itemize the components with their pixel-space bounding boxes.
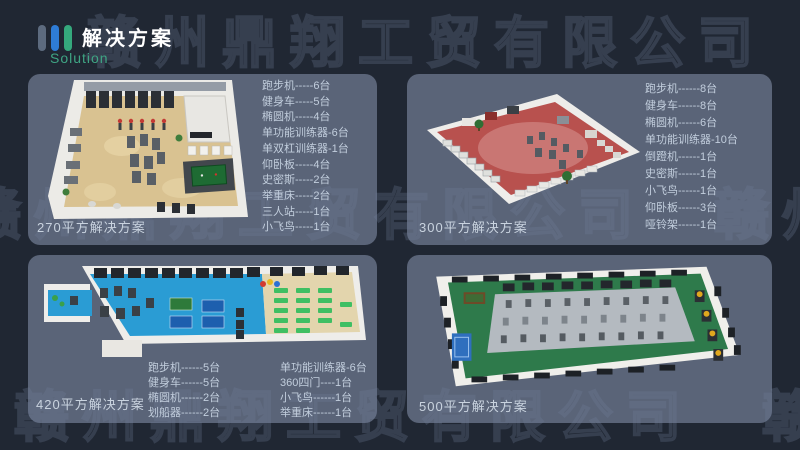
panel-caption-270: 270平方解决方案 bbox=[37, 217, 146, 236]
equipment-line: 史密斯-----2台 bbox=[262, 173, 349, 189]
window-strip bbox=[84, 82, 226, 91]
tv-screen bbox=[190, 132, 212, 138]
bar-blue-icon bbox=[51, 25, 59, 51]
dumbbell-rack bbox=[236, 308, 244, 339]
equipment-line: 健身车-----5台 bbox=[262, 95, 349, 111]
badminton-court bbox=[452, 333, 472, 360]
billiard-table bbox=[183, 158, 235, 193]
floorplan-420-image bbox=[30, 258, 375, 358]
page-title: 解决方案 bbox=[82, 22, 174, 51]
solution-panel-270: 跑步机-----6台健身车-----5台椭圆机-----4台单功能训练器-6台单… bbox=[28, 74, 377, 245]
green-board-table bbox=[170, 298, 192, 310]
equipment-line: 单双杠训练器-1台 bbox=[262, 142, 349, 158]
entry-block bbox=[102, 340, 142, 357]
solution-panel-420: 跑步机------5台健身车------5台椭圆机------2台划船器----… bbox=[28, 255, 377, 423]
equipment-line: 划船器------2台 bbox=[148, 406, 220, 421]
equipment-line: 跑步机-----6台 bbox=[262, 79, 349, 95]
solution-panel-500: 500平方解决方案 bbox=[407, 255, 772, 423]
slide: 赣州鼎翔工贸有限公司 赣州鼎翔工贸有限公司 赣州鼎翔工贸有限公司 赣州鼎翔工贸有… bbox=[0, 0, 800, 450]
solution-panel-300: 跑步机------8台健身车------8台椭圆机------6台单功能训练器-… bbox=[407, 74, 772, 245]
panel-caption-420: 420平方解决方案 bbox=[36, 394, 145, 413]
strength-machines bbox=[501, 296, 668, 343]
equipment-line: 跑步机------5台 bbox=[148, 361, 220, 376]
equipment-line: 倒蹬机------1台 bbox=[645, 149, 738, 166]
equipment-line: 跑步机------8台 bbox=[645, 81, 738, 98]
equipment-line: 举重床------1台 bbox=[280, 406, 367, 421]
equipment-line: 健身车------5台 bbox=[148, 376, 220, 391]
equipment-line: 单功能训练器-6台 bbox=[280, 361, 367, 376]
equipment-line: 单功能训练器-10台 bbox=[645, 132, 738, 149]
equipment-list-270: 跑步机-----6台健身车-----5台椭圆机-----4台单功能训练器-6台单… bbox=[262, 79, 349, 236]
floorplan-270-image bbox=[32, 76, 262, 226]
table-tennis-table bbox=[464, 292, 486, 304]
equipment-list-420-col2: 单功能训练器-6台360四门----1台小飞鸟------1台举重床------… bbox=[280, 361, 367, 421]
equipment-line: 椭圆机------6台 bbox=[645, 115, 738, 132]
equipment-line: 举重床-----2台 bbox=[262, 189, 349, 205]
equipment-line: 椭圆机-----4台 bbox=[262, 110, 349, 126]
equipment-list-300: 跑步机------8台健身车------8台椭圆机------6台单功能训练器-… bbox=[645, 81, 738, 234]
floorplan-300-image bbox=[407, 78, 645, 218]
equipment-list-420-col1: 跑步机------5台健身车------5台椭圆机------2台划船器----… bbox=[148, 361, 220, 421]
equipment-line: 小飞鸟------1台 bbox=[645, 183, 738, 200]
bar-gray-icon bbox=[38, 25, 46, 51]
equipment-line: 史密斯------1台 bbox=[645, 166, 738, 183]
equipment-line: 仰卧板-----4台 bbox=[262, 158, 349, 174]
company-watermark: 赣州鼎翔工贸有限公司 赣州鼎翔工贸有限公司 bbox=[86, 0, 800, 78]
equipment-line: 仰卧板------3台 bbox=[645, 200, 738, 217]
equipment-line: 小飞鸟------1台 bbox=[280, 391, 367, 406]
equipment-line: 健身车------8台 bbox=[645, 98, 738, 115]
equipment-line: 哑铃架------1台 bbox=[645, 217, 738, 234]
page-subtitle: Solution bbox=[50, 50, 109, 66]
equipment-line: 三人站-----1台 bbox=[262, 205, 349, 221]
bar-green-icon bbox=[64, 25, 72, 51]
fan bbox=[113, 203, 121, 209]
title-bars-icon bbox=[38, 25, 72, 51]
panel-caption-500: 500平方解决方案 bbox=[419, 396, 528, 415]
treadmill-row bbox=[86, 91, 174, 108]
equipment-line: 小飞鸟-----1台 bbox=[262, 220, 349, 236]
fan bbox=[88, 201, 96, 207]
equipment-line: 椭圆机------2台 bbox=[148, 391, 220, 406]
panel-caption-300: 300平方解决方案 bbox=[419, 217, 528, 236]
floorplan-500-image bbox=[410, 257, 768, 399]
equipment-line: 单功能训练器-6台 bbox=[262, 126, 349, 142]
equipment-line: 360四门----1台 bbox=[280, 376, 367, 391]
